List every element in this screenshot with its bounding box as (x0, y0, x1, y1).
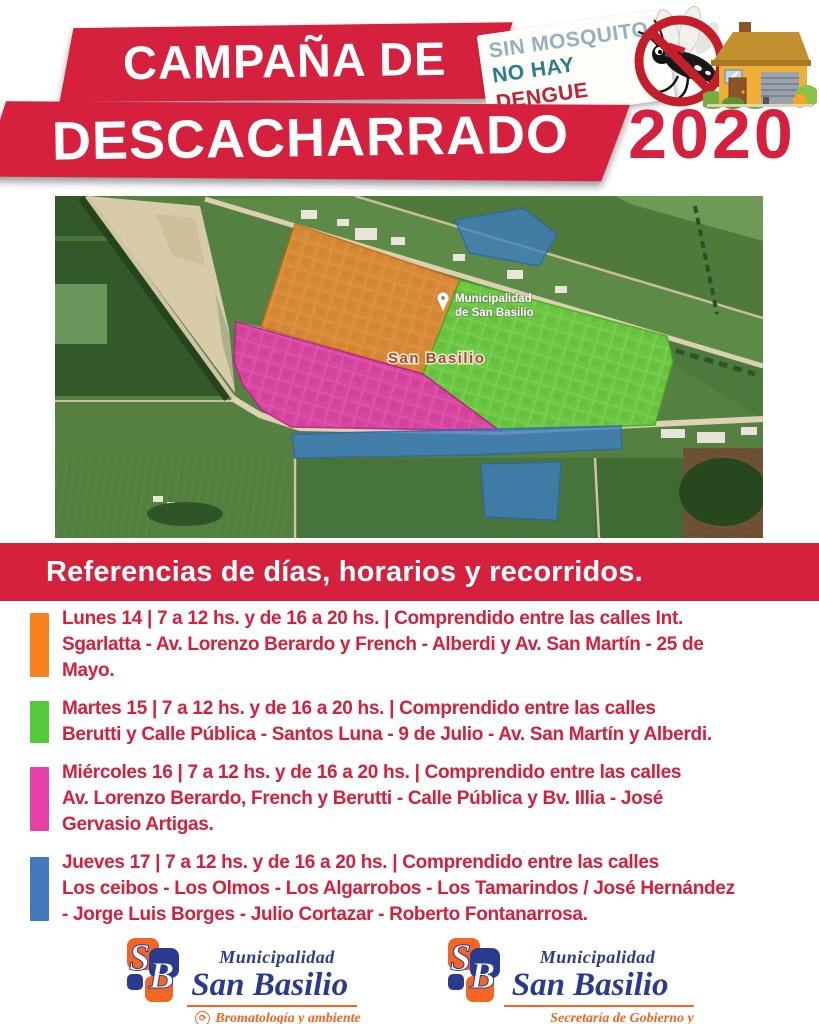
title-banner-bottom: DESCACHARRADO (0, 92, 630, 184)
campaign-year: 2020 (612, 94, 812, 174)
references-banner: Referencias de días, horarios y recorrid… (0, 543, 819, 601)
map-pin-label-line2: de San Basilio (455, 307, 534, 319)
map-town-label: San Basilio (388, 350, 485, 367)
list-item-miercoles: Miércoles 16 | 7 a 12 hs. y de 16 a 20 h… (0, 760, 819, 838)
logo-divider (187, 1005, 357, 1007)
logo-sanbasilio-label: San Basilio (191, 968, 348, 1002)
footer: S B Municipalidad San Basilio ⟳ Bromatol… (0, 936, 819, 1024)
svg-text:S: S (450, 937, 471, 979)
list-item-martes: Martes 15 | 7 a 12 hs. y de 16 a 20 hs. … (0, 696, 819, 748)
list-item-text: Miércoles 16 | 7 a 12 hs. y de 16 a 20 h… (62, 760, 799, 838)
list-item-text: Lunes 14 | 7 a 12 hs. y de 16 a 20 hs. |… (62, 606, 799, 684)
logo-bromatologia: S B Municipalidad San Basilio ⟳ Bromatol… (125, 936, 360, 1024)
sb-logo-icon: S B (446, 936, 502, 1002)
references-title: Referencias de días, horarios y recorrid… (0, 556, 643, 589)
title-line1: CAMPAÑA DE (123, 30, 447, 90)
satellite-map-image: Municipalidad de San Basilio San Basilio (55, 196, 763, 538)
logo-divider (504, 1005, 694, 1007)
logo-dept-label: Secretaría de Gobierno y Servicios Munic… (446, 1010, 694, 1024)
schedule-list: Lunes 14 | 7 a 12 hs. y de 16 a 20 hs. |… (0, 606, 819, 928)
zone-swatch-magenta (30, 767, 49, 831)
svg-text:B: B (469, 955, 495, 997)
title-line2: DESCACHARRADO (52, 103, 570, 172)
flyer-page: CAMPAÑA DE SIN MOSQUITO NO HAY DENGUE (0, 0, 819, 1024)
zone-swatch-green (30, 701, 49, 743)
list-item-lunes: Lunes 14 | 7 a 12 hs. y de 16 a 20 hs. |… (0, 606, 819, 684)
map-zone-blue-block (481, 462, 561, 520)
svg-text:B: B (148, 955, 174, 997)
logo-secretaria: S B Municipalidad San Basilio Secretaría… (446, 936, 694, 1024)
zone-swatch-blue (30, 857, 49, 921)
sb-logo-icon: S B (125, 936, 181, 1002)
list-item-text: Martes 15 | 7 a 12 hs. y de 16 a 20 hs. … (62, 696, 799, 748)
bromatologia-icon: ⟳ (195, 1011, 210, 1024)
logo-sanbasilio-label: San Basilio (512, 968, 669, 1002)
map-pin-label-line1: Municipalidad (455, 293, 532, 305)
logo-municipalidad-label: Municipalidad (540, 947, 656, 968)
satellite-map: Municipalidad de San Basilio San Basilio (55, 196, 763, 538)
list-item-jueves: Jueves 17 | 7 a 12 hs. y de 16 a 20 hs. … (0, 850, 819, 928)
list-item-text: Jueves 17 | 7 a 12 hs. y de 16 a 20 hs. … (62, 850, 799, 928)
title-banner-top: CAMPAÑA DE (55, 18, 515, 102)
zone-swatch-orange (30, 613, 49, 677)
logo-dept-label: ⟳ Bromatología y ambiente (195, 1010, 360, 1024)
svg-text:S: S (129, 937, 150, 979)
logo-municipalidad-label: Municipalidad (219, 947, 335, 968)
